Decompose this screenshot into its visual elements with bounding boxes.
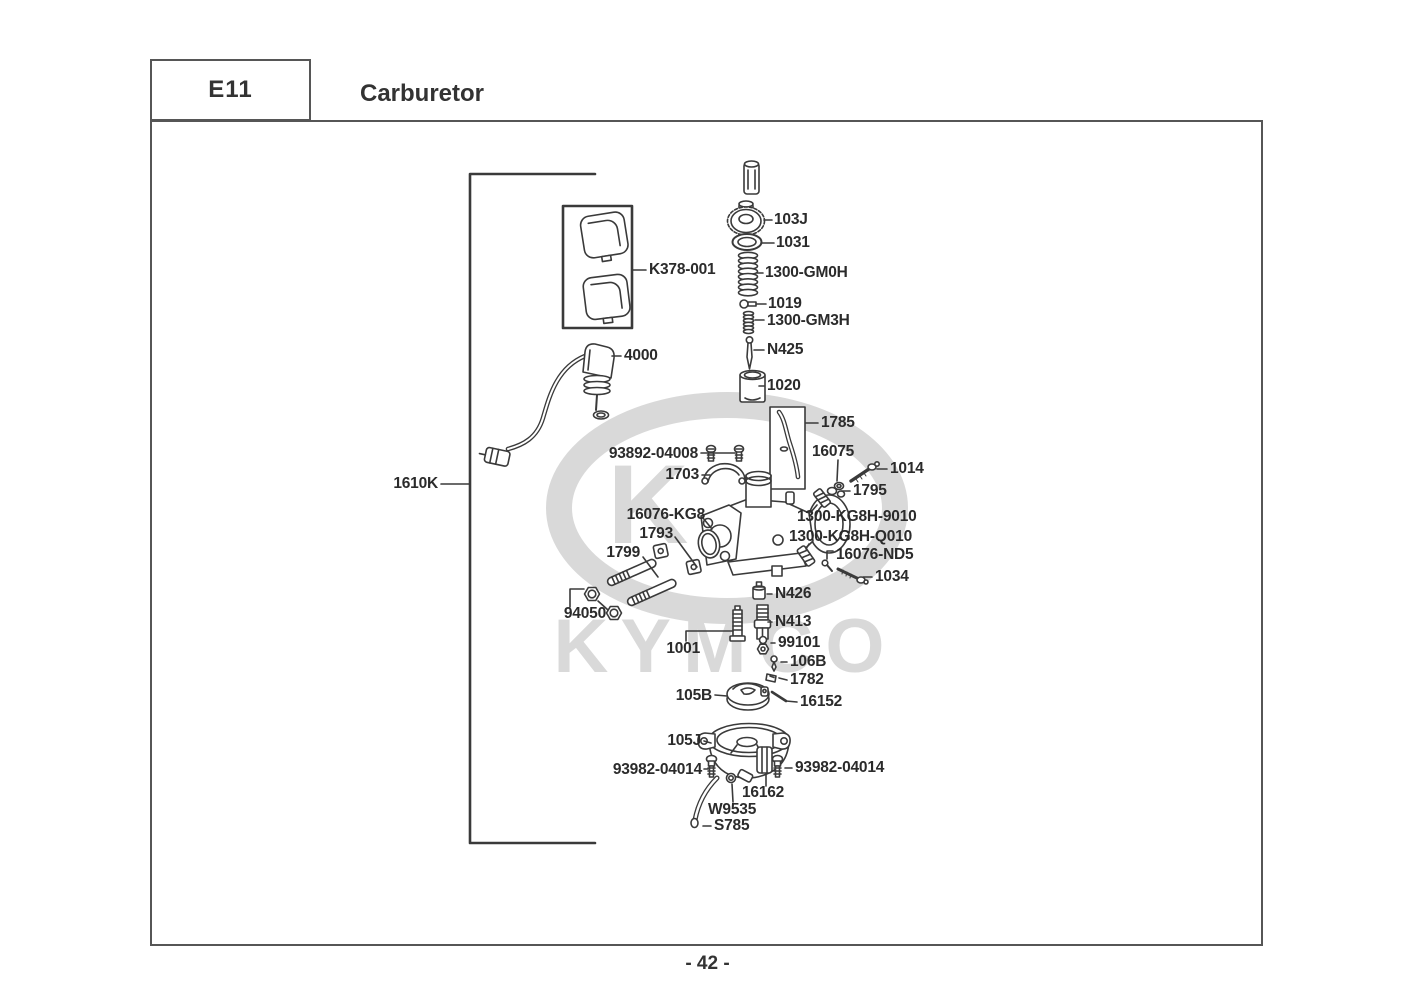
- part-4000-bystarter: [478, 344, 614, 467]
- part-1300-GM3H-spring: [744, 312, 754, 334]
- part-W9535-ring: [727, 774, 736, 783]
- part-1785-hose: [770, 407, 805, 489]
- part-16076-ND5-screw: [822, 560, 832, 571]
- section-code-box: E11: [150, 59, 311, 121]
- part-1031-oring: [733, 234, 762, 250]
- part-1782-clip: [766, 674, 776, 682]
- part-99101-jet: [758, 637, 769, 654]
- part-S785-hose: [691, 778, 717, 828]
- part-106B-valve: [771, 656, 777, 671]
- part-1799-studs: [606, 558, 677, 606]
- parts-catalog-page: E11 Carburetor K KYMCO: [0, 0, 1415, 1000]
- part-94050-nuts: [585, 588, 622, 620]
- part-1001-jet: [730, 606, 745, 641]
- part-N426-valve: [753, 582, 765, 599]
- part-1703-bracket: [702, 464, 745, 484]
- part-1793-oring: [653, 528, 722, 575]
- part-103J-cap: [728, 201, 765, 235]
- page-title: Carburetor: [360, 80, 484, 108]
- part-1014-screw: [851, 462, 879, 482]
- diagram-artwork: [0, 0, 1415, 1000]
- part-1300-GM0H-spring: [739, 252, 758, 295]
- section-code: E11: [208, 76, 252, 104]
- part-105B-float: [727, 683, 769, 710]
- part-N425-needle: [746, 337, 752, 369]
- part-box-K378-001: [563, 206, 632, 328]
- part-cap-tube: [744, 161, 759, 194]
- part-1019-screw: [740, 300, 756, 308]
- page-number: - 42 -: [0, 953, 1415, 975]
- part-16152-pin: [772, 692, 786, 701]
